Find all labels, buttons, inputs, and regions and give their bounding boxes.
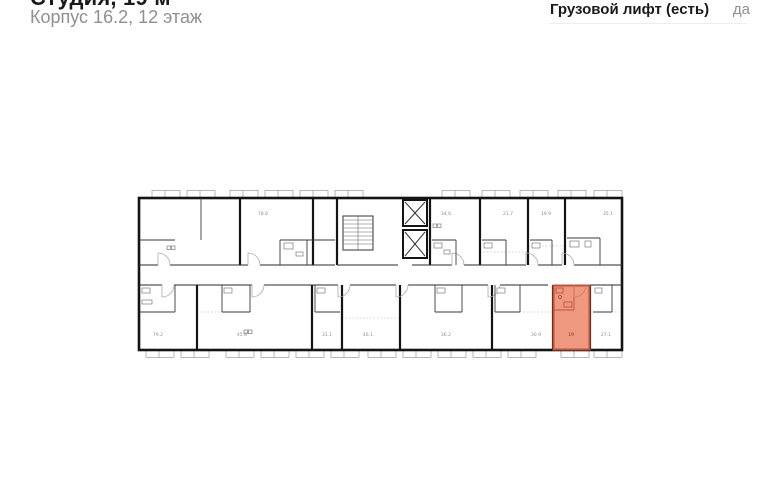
- unit-area-label: 78.6: [258, 211, 268, 217]
- corridor-walls: [139, 265, 622, 285]
- bottom-unit-walls: [197, 285, 590, 350]
- unit-area-label: 36.2: [441, 332, 451, 338]
- unit-area-label: 35.1: [603, 211, 613, 217]
- selected-unit[interactable]: [553, 285, 590, 350]
- unit-area-label: 79.2: [153, 332, 163, 338]
- unit-area-label: 46.1: [363, 332, 373, 338]
- elevator-shafts: [403, 200, 427, 258]
- unit-area-label: 45.8: [237, 332, 247, 338]
- listing-plan-screen: Студия, 19 м² Корпус 16.2, 12 этаж Грузо…: [0, 0, 770, 500]
- building-outline: [139, 198, 622, 350]
- unit-area-label: 27.1: [601, 332, 611, 338]
- unit-area-label: 19.9: [541, 211, 551, 217]
- selected-unit-area[interactable]: [554, 286, 590, 350]
- staircase: [343, 216, 373, 250]
- selected-unit-area-label: 19: [568, 332, 574, 338]
- unit-area-label: 21.7: [503, 211, 513, 217]
- door-arcs: [158, 253, 574, 297]
- unit-area-label: 30.9: [531, 332, 541, 338]
- unit-area-label: 31.1: [322, 332, 332, 338]
- unit-area-label: 34.6: [441, 211, 451, 217]
- floor-plan: 78.6 34.6 21.7 19.9 35.1 79.2 45.8 31.1 …: [0, 0, 770, 500]
- unit-area-labels: 78.6 34.6 21.7 19.9 35.1 79.2 45.8 31.1 …: [153, 211, 613, 338]
